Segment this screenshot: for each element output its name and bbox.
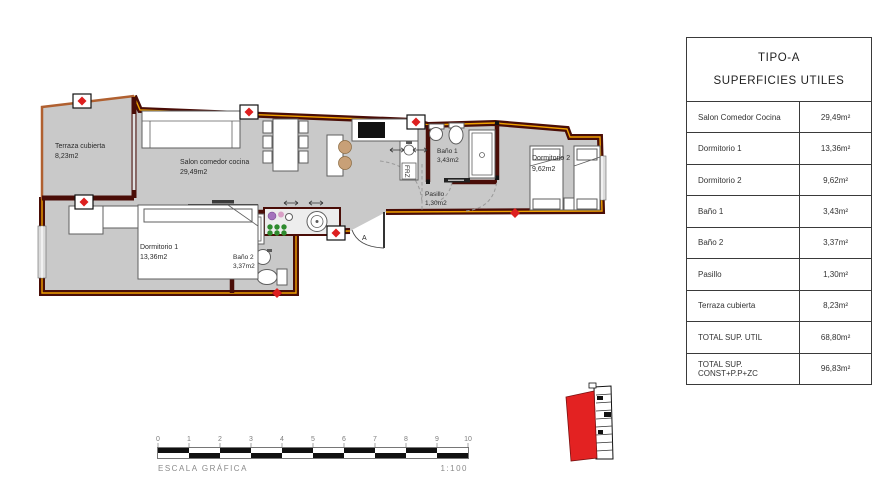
row-value: 13,36m²	[800, 133, 871, 163]
row-label: TOTAL SUP. CONST+P.P+ZC	[687, 354, 800, 384]
scale-bar: 0 1 2 3 4 5 6 7 8 9 10	[156, 436, 472, 473]
nightstand-icon	[564, 198, 574, 210]
table-row: Pasillo 1,30m²	[687, 258, 871, 289]
scale-ratio: 1:100	[440, 464, 468, 473]
svg-text:1,30m2: 1,30m2	[425, 200, 447, 207]
wall-cap	[426, 180, 430, 185]
tap-icon	[267, 249, 272, 252]
svg-text:5: 5	[311, 436, 315, 443]
row-label: Baño 2	[687, 228, 800, 258]
row-value: 68,80m²	[800, 322, 871, 352]
svg-text:13,36m2: 13,36m2	[140, 254, 167, 261]
floorplan-sheet: FRZ	[0, 0, 890, 500]
toilet-icon	[257, 269, 287, 285]
table-row: Salon Comedor Cocina 29,49m²	[687, 101, 871, 132]
row-value: 1,30m²	[800, 259, 871, 289]
table-row: Dormitorio 2 9,62m²	[687, 164, 871, 195]
svg-text:Dormitorio 1: Dormitorio 1	[140, 244, 178, 251]
svg-text:1: 1	[187, 436, 191, 443]
row-label: Dormitorio 2	[687, 165, 800, 195]
svg-text:Pasillo: Pasillo	[425, 191, 445, 198]
row-label: Terraza cubierta	[687, 291, 800, 321]
key-plan	[566, 383, 613, 461]
scale-ticks: 0 1 2 3 4 5 6 7 8 9 10	[156, 436, 472, 443]
row-label: Baño 1	[687, 196, 800, 226]
column-marker	[407, 115, 425, 129]
dining-table-icon	[263, 119, 308, 171]
svg-text:2: 2	[218, 436, 222, 443]
entrance-door-label: A	[362, 235, 367, 242]
row-label: TOTAL SUP. UTIL	[687, 322, 800, 352]
toilet-icon	[449, 123, 464, 144]
table-title: TIPO-A	[758, 52, 800, 64]
svg-text:Baño 2: Baño 2	[233, 254, 254, 261]
svg-text:9: 9	[435, 436, 439, 443]
svg-text:6: 6	[342, 436, 346, 443]
table-row-total: TOTAL SUP. UTIL 68,80m²	[687, 321, 871, 352]
single-bed-icon	[574, 146, 600, 210]
fridge-label: FRZ	[403, 165, 410, 178]
row-value: 96,83m²	[800, 354, 871, 384]
column-marker	[240, 105, 258, 119]
row-value: 8,23m²	[800, 291, 871, 321]
column-marker	[75, 195, 93, 209]
cooktop-icon	[358, 122, 385, 138]
svg-text:Dormitorio 2: Dormitorio 2	[532, 155, 570, 162]
towel-rail-icon	[444, 178, 470, 183]
row-label: Pasillo	[687, 259, 800, 289]
svg-text:9,62m2: 9,62m2	[532, 166, 555, 173]
highlighted-unit	[566, 391, 597, 461]
table-row: Dormitorio 1 13,36m²	[687, 132, 871, 163]
scale-bar-title: ESCALA GRÁFICA	[158, 464, 248, 473]
areas-table: TIPO-A SUPERFICIES UTILES Salon Comedor …	[686, 37, 872, 385]
row-label: Salon Comedor Cocina	[687, 102, 800, 132]
table-row: Baño 2 3,37m²	[687, 227, 871, 258]
row-value: 9,62m²	[800, 165, 871, 195]
svg-text:Terraza cubierta: Terraza cubierta	[55, 143, 105, 150]
table-row: Terraza cubierta 8,23m²	[687, 290, 871, 321]
svg-text:8: 8	[404, 436, 408, 443]
sink-bowl-icon	[268, 212, 276, 220]
wall-cap	[495, 176, 499, 181]
svg-text:3,43m2: 3,43m2	[437, 157, 459, 164]
svg-text:10: 10	[464, 436, 472, 443]
svg-text:8,23m2: 8,23m2	[55, 153, 78, 160]
svg-text:Baño 1: Baño 1	[437, 148, 458, 155]
row-value: 29,49m²	[800, 102, 871, 132]
shower-icon	[469, 130, 495, 178]
svg-text:4: 4	[280, 436, 284, 443]
svg-text:7: 7	[373, 436, 377, 443]
row-value: 3,43m²	[800, 196, 871, 226]
sofa-icon	[142, 111, 240, 148]
column-marker	[73, 94, 91, 108]
table-subtitle: SUPERFICIES UTILES	[714, 75, 845, 87]
svg-text:3: 3	[249, 436, 253, 443]
wall-cap	[495, 121, 499, 125]
areas-table-header: TIPO-A SUPERFICIES UTILES	[687, 38, 871, 101]
sink-bowl-icon	[278, 212, 284, 218]
svg-text:Salon comedor cocina: Salon comedor cocina	[180, 159, 249, 166]
row-label: Dormitorio 1	[687, 133, 800, 163]
table-row: Baño 1 3,43m²	[687, 195, 871, 226]
svg-text:3,37m2: 3,37m2	[233, 263, 255, 270]
svg-text:0: 0	[156, 436, 160, 443]
window	[38, 226, 46, 278]
table-row-total: TOTAL SUP. CONST+P.P+ZC 96,83m²	[687, 353, 871, 384]
column-marker	[327, 226, 345, 240]
row-value: 3,37m²	[800, 228, 871, 258]
svg-text:29,49m2: 29,49m2	[180, 169, 207, 176]
